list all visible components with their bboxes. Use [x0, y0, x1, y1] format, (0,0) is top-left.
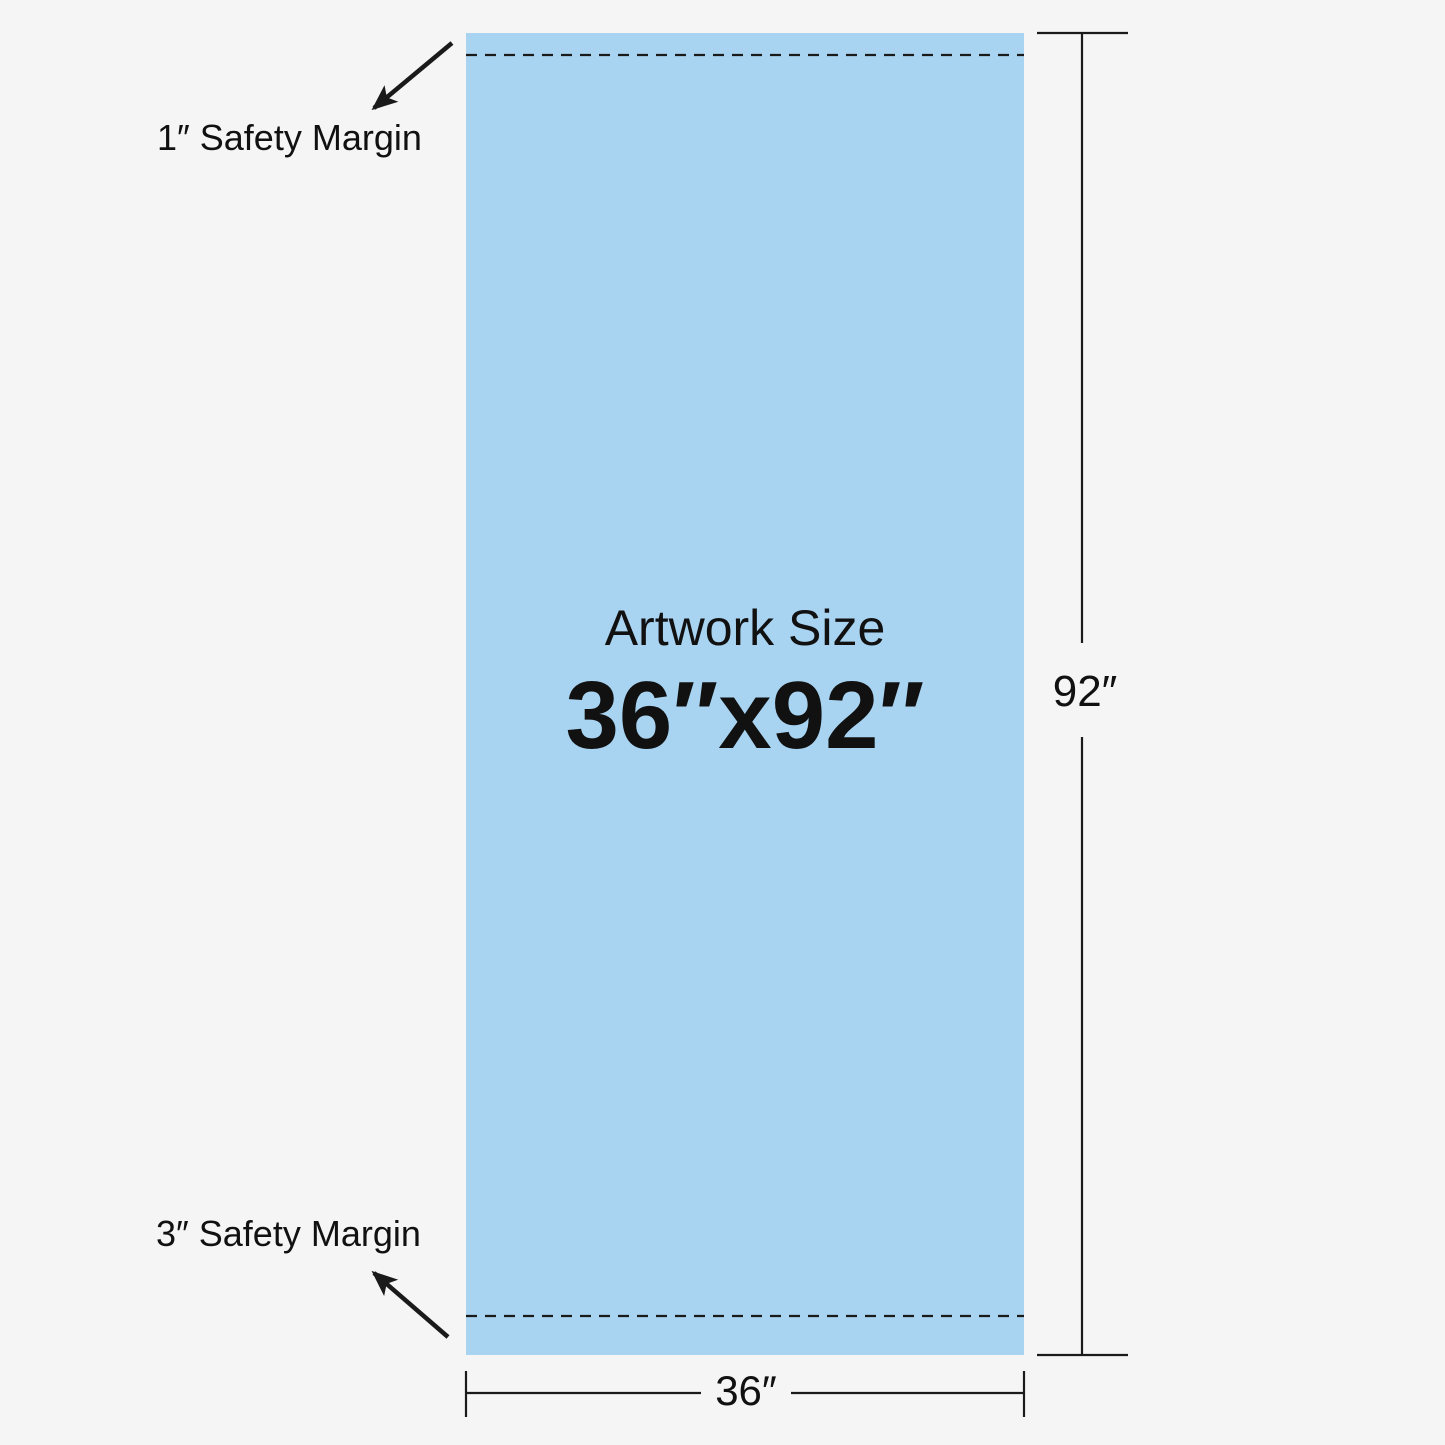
top-safety-margin-label: 1″ Safety Margin [157, 117, 422, 158]
bottom-safety-margin-label: 3″ Safety Margin [156, 1213, 421, 1254]
artwork-size-value: 36″x92″ [566, 662, 925, 769]
banner-size-diagram: 1″ Safety Margin Artwork Size 36″x92″ 92… [0, 0, 1445, 1445]
width-dimension-label: 36″ [715, 1367, 777, 1414]
artwork-size-title: Artwork Size [605, 600, 886, 656]
height-dimension-label: 92″ [1053, 667, 1118, 716]
banner-size-diagram-canvas: 1″ Safety Margin Artwork Size 36″x92″ 92… [0, 0, 1445, 1445]
